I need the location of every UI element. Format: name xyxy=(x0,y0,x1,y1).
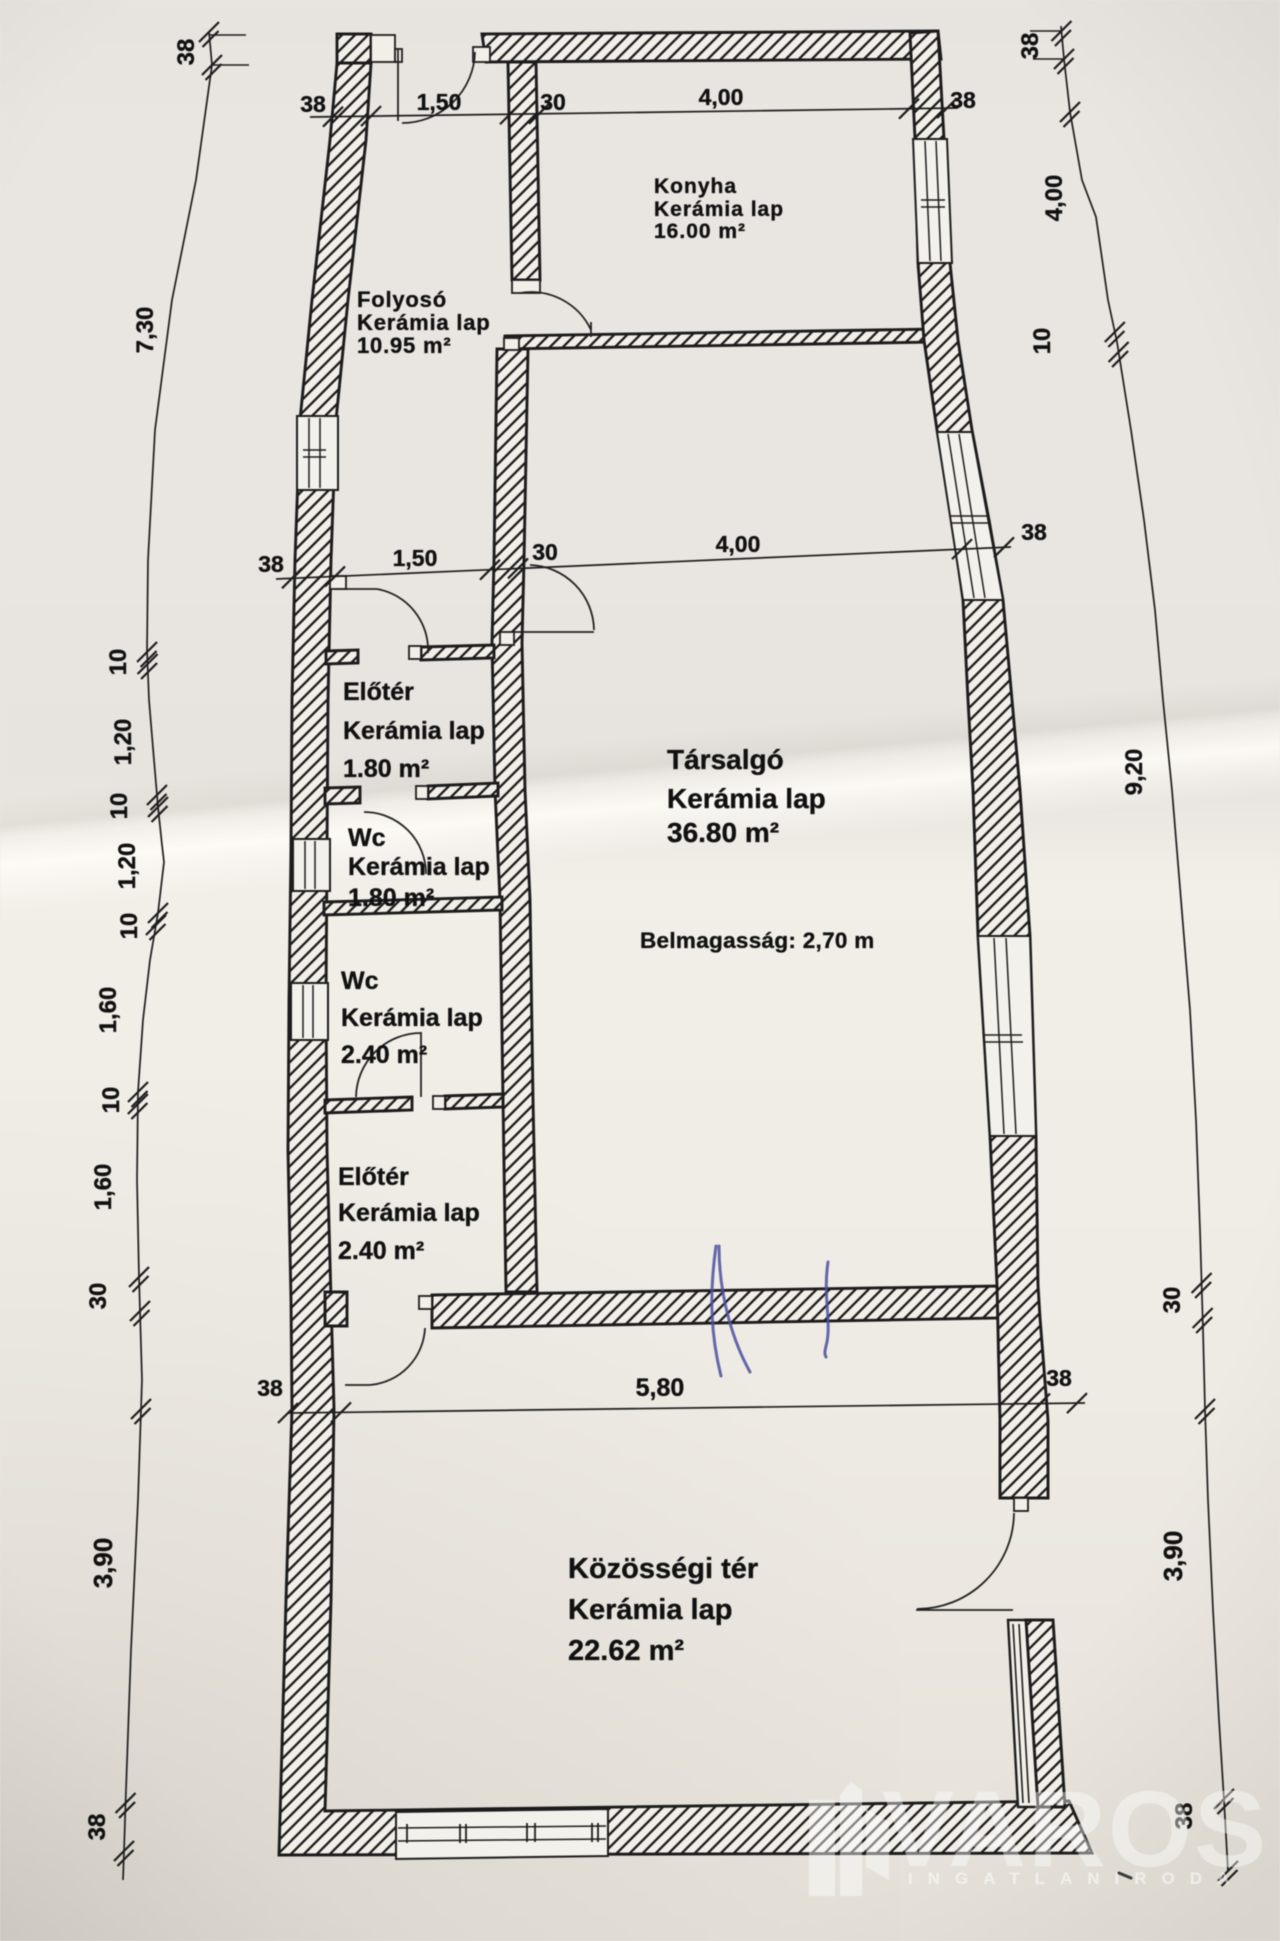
svg-text:Kerámia lap: Kerámia lap xyxy=(338,1199,480,1227)
svg-text:10: 10 xyxy=(98,1087,125,1114)
svg-text:Folyosó: Folyosó xyxy=(357,287,447,312)
svg-text:Kerámia lap: Kerámia lap xyxy=(343,717,485,745)
svg-text:9,20: 9,20 xyxy=(1121,749,1148,796)
svg-text:38: 38 xyxy=(173,39,200,66)
svg-text:30: 30 xyxy=(540,89,566,115)
svg-text:2.40 m²: 2.40 m² xyxy=(338,1237,424,1265)
svg-text:INGATLANIRODA: INGATLANIRODA xyxy=(908,1869,1244,1888)
svg-text:1.80 m²: 1.80 m² xyxy=(348,884,434,912)
svg-text:10: 10 xyxy=(105,649,132,676)
svg-text:1,50: 1,50 xyxy=(417,89,462,115)
svg-text:1,20: 1,20 xyxy=(114,843,141,890)
svg-text:Kerámia lap: Kerámia lap xyxy=(357,310,491,335)
svg-text:1.80 m²: 1.80 m² xyxy=(343,755,429,783)
svg-text:Előtér: Előtér xyxy=(338,1163,409,1191)
svg-text:Wc: Wc xyxy=(341,967,379,995)
svg-text:Kerámia lap: Kerámia lap xyxy=(341,1004,483,1032)
svg-text:Kerámia lap: Kerámia lap xyxy=(348,853,490,881)
svg-text:30: 30 xyxy=(85,1283,112,1310)
svg-text:Kerámia lap: Kerámia lap xyxy=(667,783,826,814)
svg-text:4,00: 4,00 xyxy=(699,84,744,110)
svg-text:38: 38 xyxy=(1046,1365,1072,1391)
svg-text:10: 10 xyxy=(116,913,143,940)
svg-text:Konyha: Konyha xyxy=(654,175,737,198)
svg-text:3,90: 3,90 xyxy=(1158,1531,1188,1582)
svg-text:16.00 m²: 16.00 m² xyxy=(654,220,746,243)
svg-text:Társalgó: Társalgó xyxy=(667,744,784,775)
svg-text:10: 10 xyxy=(1029,328,1056,355)
svg-text:7,30: 7,30 xyxy=(132,307,159,354)
svg-text:4,00: 4,00 xyxy=(716,531,761,557)
svg-text:2.40 m²: 2.40 m² xyxy=(341,1041,427,1069)
svg-text:Wc: Wc xyxy=(348,824,386,852)
svg-text:38: 38 xyxy=(1021,519,1047,545)
svg-text:5,80: 5,80 xyxy=(636,1374,685,1402)
svg-text:38: 38 xyxy=(258,551,284,577)
svg-text:38: 38 xyxy=(950,87,976,113)
svg-text:3,90: 3,90 xyxy=(88,1538,118,1589)
svg-text:30: 30 xyxy=(1159,1287,1186,1314)
svg-text:Közösségi tér: Közösségi tér xyxy=(568,1553,758,1585)
svg-text:Kerámia lap: Kerámia lap xyxy=(654,198,784,221)
svg-text:1,20: 1,20 xyxy=(110,719,137,766)
svg-text:36.80 m²: 36.80 m² xyxy=(667,817,779,848)
svg-text:Kerámia lap: Kerámia lap xyxy=(568,1594,732,1626)
svg-text:10: 10 xyxy=(106,793,133,820)
svg-text:10.95 m²: 10.95 m² xyxy=(357,333,451,358)
svg-text:38: 38 xyxy=(84,1814,111,1841)
svg-text:22.62 m²: 22.62 m² xyxy=(568,1635,684,1667)
svg-text:30: 30 xyxy=(532,539,558,565)
svg-text:Belmagasság: 2,70 m: Belmagasság: 2,70 m xyxy=(640,928,875,953)
svg-text:4,00: 4,00 xyxy=(1041,175,1068,222)
svg-text:38: 38 xyxy=(300,91,326,117)
svg-text:38: 38 xyxy=(1017,33,1044,60)
svg-text:38: 38 xyxy=(257,1375,283,1401)
svg-text:Előtér: Előtér xyxy=(343,678,414,706)
svg-text:1,60: 1,60 xyxy=(95,987,122,1034)
svg-text:1,50: 1,50 xyxy=(393,545,438,571)
svg-text:1,60: 1,60 xyxy=(90,1164,117,1211)
